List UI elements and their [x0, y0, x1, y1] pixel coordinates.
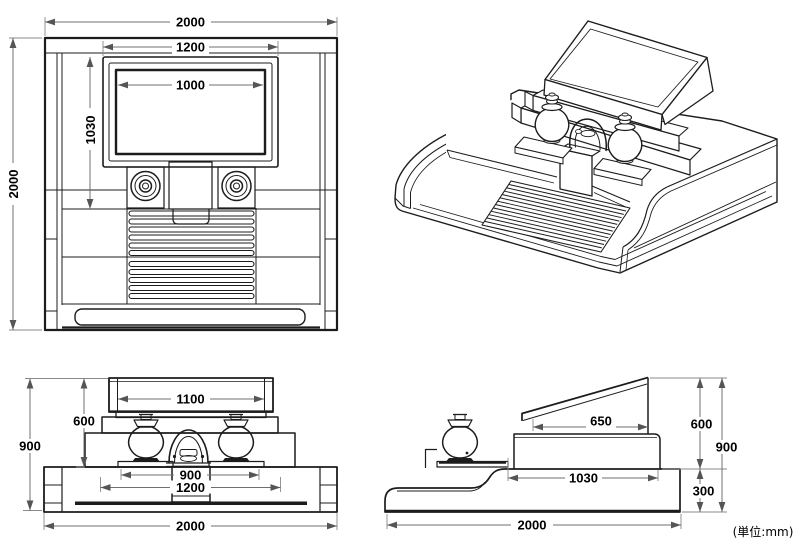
side-upper-tier: [514, 434, 660, 469]
dim-plan-monument-width: 1200: [176, 40, 205, 55]
dim-plan-overall-width: 2000: [176, 15, 205, 30]
side-headstone: [522, 378, 648, 435]
dim-front-upper-height: 600: [73, 414, 95, 429]
dim-side-total-height: 900: [716, 440, 738, 455]
front-flower-vase-left: [129, 415, 164, 463]
dim-front-overall-width: 2000: [176, 519, 205, 534]
front-view: 1100 600 900 900 1200 2000: [16, 378, 337, 534]
unit-note: (単位:mm): [733, 524, 794, 539]
flower-vase-right-top: [218, 167, 255, 208]
grate-slats: [129, 211, 254, 299]
front-flower-vase-right: [219, 415, 254, 463]
flower-vase-left-top: [127, 167, 164, 208]
dim-side-upper-height: 600: [691, 417, 713, 432]
headstone-outline-top: [103, 57, 278, 167]
technical-drawing-page: 2000 2000 1200 1000 1030: [0, 0, 800, 547]
dim-plan-inner-width: 1000: [176, 78, 205, 93]
memorial-monument-drawing: 2000 2000 1200 1000 1030: [0, 0, 800, 547]
side-flower-vase: [443, 415, 478, 462]
grate-area-top: [62, 208, 320, 304]
dim-side-top-depth: 650: [590, 414, 612, 429]
dim-front-total-height: 900: [19, 439, 41, 454]
side-base-profile: [385, 469, 680, 512]
side-shelf-bracket: [426, 450, 438, 469]
isometric-view: [395, 21, 777, 273]
plan-view: 2000 2000 1200 1000 1030: [6, 15, 337, 331]
dim-front-headstone-width: 1100: [176, 392, 204, 407]
incense-stand-top: [169, 162, 212, 224]
dim-side-base-height: 300: [693, 484, 715, 499]
dim-side-platform-depth: 1030: [569, 471, 598, 486]
dim-front-base-tier-width: 1200: [176, 480, 205, 495]
dim-plan-overall-depth: 2000: [6, 170, 21, 199]
dim-side-overall-depth: 2000: [518, 518, 547, 533]
front-step-top: [62, 309, 320, 328]
side-view: 650 1030 600 300 900 2000: [385, 378, 741, 533]
front-dimensions: 1100 600 900 900 1200 2000: [16, 379, 337, 534]
dim-plan-monument-depth: 1030: [83, 116, 98, 145]
